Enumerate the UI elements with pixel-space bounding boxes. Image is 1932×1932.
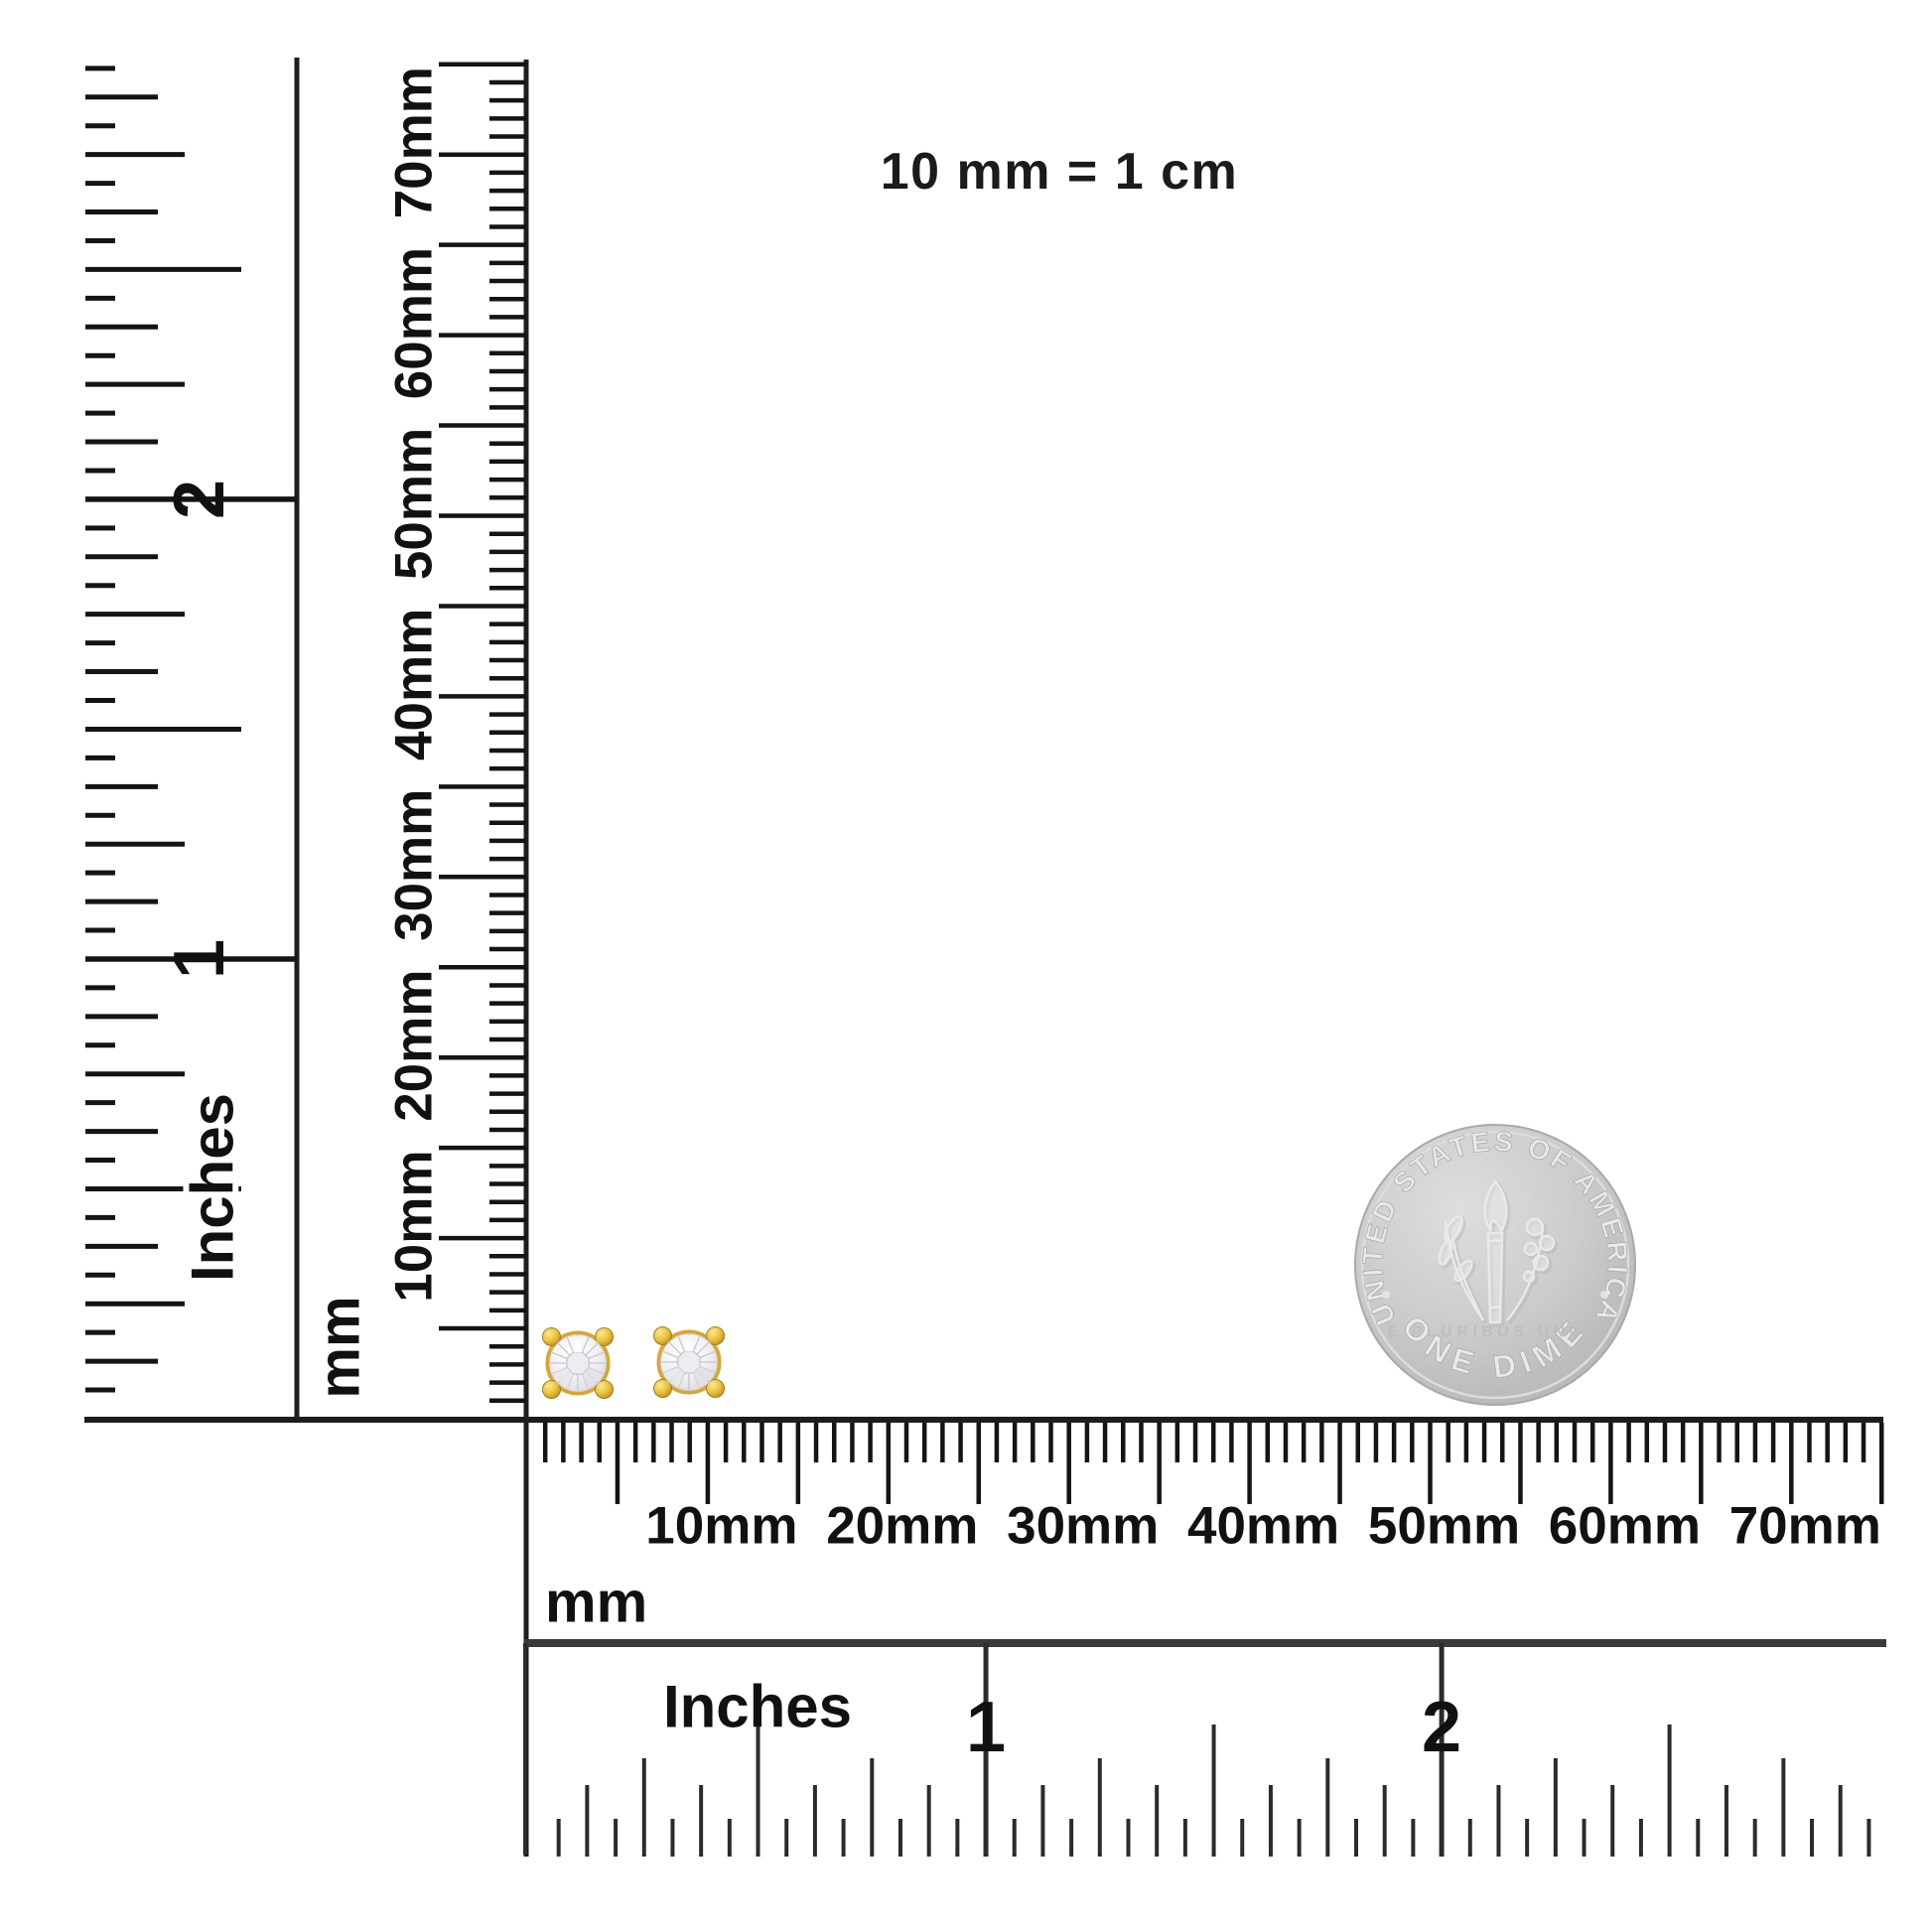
ruler-frame-lines — [84, 58, 1886, 1857]
horizontal-mm-unit-label: mm — [545, 1571, 647, 1635]
diamond-stud-earrings — [543, 1327, 725, 1399]
coin-right-dot — [1600, 1291, 1608, 1299]
horizontal-mm-label-10mm: 10mm — [645, 1497, 797, 1556]
horizontal-mm-label-70mm: 70mm — [1729, 1497, 1881, 1556]
vertical-mm-label-20mm: 20mm — [385, 970, 444, 1122]
vertical-mm-label-50mm: 50mm — [385, 428, 444, 580]
coin-left-dot — [1382, 1291, 1390, 1299]
horizontal-mm-label-50mm: 50mm — [1368, 1497, 1520, 1556]
vertical-inches-unit-label: Inches — [180, 1093, 246, 1282]
horizontal-inch-number-1: 1 — [966, 1688, 1006, 1767]
vertical-mm-label-70mm: 70mm — [385, 67, 444, 218]
vertical-mm-label-60mm: 60mm — [385, 247, 444, 399]
vertical-inch-number-2: 2 — [160, 480, 239, 519]
diamond-stud-earring-right — [654, 1327, 725, 1398]
horizontal-mm-ruler: 10mm20mm30mm40mm50mm60mm70mm mm — [545, 1423, 1881, 1635]
diamond-stud-earring-left — [543, 1328, 614, 1399]
measurement-diagram: 10 mm = 1 cm 2 1 Inches 10mm20mm30mm40mm… — [0, 0, 1932, 1932]
scale-note: 10 mm = 1 cm — [881, 143, 1239, 201]
horizontal-mm-tick-labels: 10mm20mm30mm40mm50mm60mm70mm — [645, 1497, 1881, 1556]
vertical-mm-unit-label: mm — [308, 1296, 372, 1398]
vertical-mm-tick-labels: 10mm20mm30mm40mm50mm60mm70mm — [385, 67, 444, 1303]
horizontal-mm-label-40mm: 40mm — [1187, 1497, 1339, 1556]
vertical-mm-label-10mm: 10mm — [385, 1150, 444, 1302]
vertical-inch-number-1: 1 — [160, 939, 239, 979]
coin-motto-inscription: E PLURIBUS UNUM — [1388, 1324, 1603, 1341]
horizontal-inches-unit-label: Inches — [663, 1674, 852, 1740]
vertical-mm-ticks — [439, 65, 526, 1401]
horizontal-mm-label-60mm: 60mm — [1549, 1497, 1701, 1556]
product-scale-reference-image: 10 mm = 1 cm 2 1 Inches 10mm20mm30mm40mm… — [0, 0, 1932, 1932]
vertical-mm-label-40mm: 40mm — [385, 609, 444, 760]
dime-coin: UNITED STATES OF AMERICA ONE DIME E PLUR… — [1355, 1125, 1635, 1405]
vertical-mm-label-30mm: 30mm — [385, 789, 444, 941]
horizontal-mm-label-30mm: 30mm — [1007, 1497, 1159, 1556]
horizontal-inches-ruler: Inches 1 2 — [525, 1643, 1868, 1857]
horizontal-mm-label-20mm: 20mm — [826, 1497, 978, 1556]
vertical-mm-ruler: 10mm20mm30mm40mm50mm60mm70mm mm — [308, 65, 527, 1401]
horizontal-inch-number-2: 2 — [1422, 1688, 1461, 1767]
horizontal-mm-ticks — [545, 1423, 1881, 1504]
vertical-inches-ruler: 2 1 Inches — [85, 69, 297, 1390]
